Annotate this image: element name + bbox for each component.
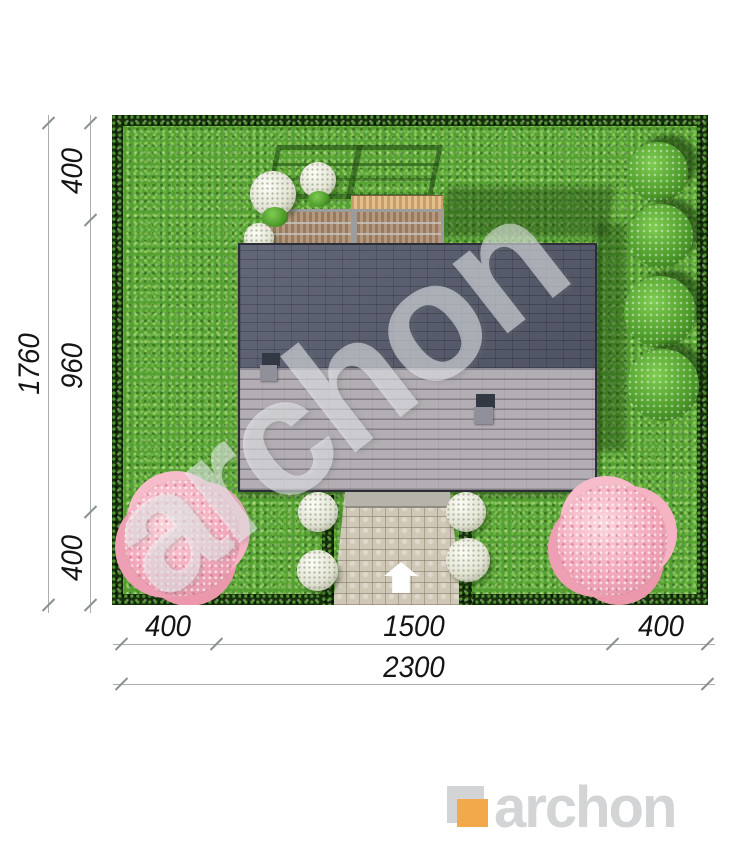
roof-north-slope	[240, 245, 595, 368]
hedge-bottom-left	[112, 594, 337, 605]
chimney	[474, 394, 496, 424]
blossom-texture	[124, 480, 240, 596]
house-cast-shadow	[596, 223, 626, 451]
site-plan-page: 1760 400 960 400	[0, 0, 734, 854]
dim-label-left-total: 1760	[13, 333, 47, 394]
white-shrub	[446, 538, 490, 582]
chimney-body	[474, 407, 493, 424]
round-bush	[624, 276, 696, 348]
round-bush	[629, 204, 693, 268]
dim-label-left-bottom: 400	[56, 535, 90, 581]
hedge-left	[112, 115, 123, 605]
dim-label-bottom-right: 400	[638, 610, 684, 644]
blossom-tree-right	[557, 485, 667, 595]
white-shrub	[298, 492, 338, 532]
blossom-texture	[557, 485, 667, 595]
roof-south-slope	[240, 370, 595, 490]
left-outer-dimension-line	[48, 115, 49, 613]
dim-label-left-middle: 960	[56, 343, 90, 389]
round-bush	[628, 142, 688, 202]
archon-logo: archon	[440, 775, 720, 845]
bush-texture	[624, 276, 696, 348]
bush-texture	[628, 142, 688, 202]
plot-aerial-view: archon	[112, 115, 708, 605]
blossom-tree-left	[124, 480, 240, 596]
bush-texture	[627, 349, 699, 421]
small-bush	[308, 191, 330, 207]
dim-label-bottom-total: 2300	[383, 651, 444, 685]
dim-label-bottom-middle: 1500	[383, 610, 444, 644]
white-shrub	[297, 550, 338, 591]
chimney-cap	[476, 394, 495, 408]
chimney	[260, 353, 280, 381]
hedge-bottom-right	[457, 594, 708, 605]
dim-label-bottom-left: 400	[145, 610, 191, 644]
small-bush	[262, 207, 288, 227]
logo-wordmark: archon	[494, 774, 675, 841]
chimney-cap	[262, 353, 280, 366]
white-shrub	[446, 492, 486, 532]
logo-orange-square-icon	[457, 799, 488, 827]
left-inner-dimension-line	[90, 115, 91, 613]
pergola-cast-shadow	[439, 187, 616, 237]
round-bush	[627, 349, 699, 421]
bush-texture	[629, 204, 693, 268]
bottom-inner-dimension-line	[113, 644, 715, 645]
terrace-slat-wall	[264, 209, 444, 246]
chimney-body	[260, 365, 277, 381]
hedge-top	[112, 115, 708, 126]
dim-label-left-top: 400	[56, 148, 90, 194]
entrance-apron	[345, 492, 450, 508]
house-roof	[238, 243, 597, 492]
